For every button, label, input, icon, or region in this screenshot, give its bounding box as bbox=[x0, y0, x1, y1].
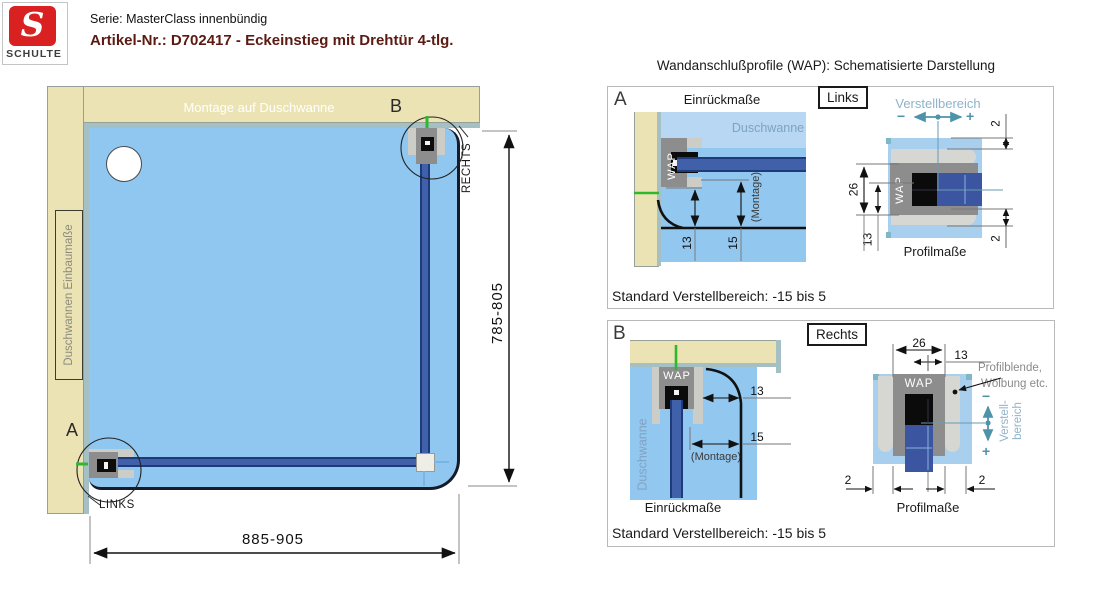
glass-panel-horizontal bbox=[113, 457, 417, 467]
wap-section-title: Wandanschlußprofile (WAP): Schematisiert… bbox=[646, 58, 1006, 73]
serie-line: Serie: MasterClass innenbündig bbox=[90, 12, 267, 26]
a-verstellbereich-label: Verstellbereich bbox=[878, 96, 998, 111]
b-dim-2-right: 2 bbox=[974, 473, 990, 487]
logo-wordmark: SCHULTE bbox=[3, 48, 65, 60]
b-dim-26: 26 bbox=[905, 336, 933, 350]
shower-tray bbox=[89, 128, 460, 490]
links-box-label: Links bbox=[818, 86, 868, 109]
panel-a-letter: A bbox=[614, 89, 627, 111]
b-wap-notch bbox=[674, 390, 679, 395]
corner-connector bbox=[416, 453, 435, 472]
b-profilmasse-label: Profilmaße bbox=[868, 500, 988, 515]
a-glass bbox=[677, 157, 806, 172]
einbaumasse-box: Duschwannen Einbaumaße bbox=[55, 210, 83, 380]
panel-a-side-box: Links bbox=[818, 86, 868, 109]
a-profile-teal-mark-bottom bbox=[886, 232, 891, 238]
a-duschwanne-label: Duschwanne bbox=[718, 121, 818, 135]
b-glass bbox=[670, 400, 683, 498]
b-profile-teal-mark-right bbox=[966, 374, 972, 380]
b-profile-glass-blue bbox=[905, 425, 933, 472]
b-profile-glass-black bbox=[905, 394, 933, 425]
a-dim-26: 26 bbox=[847, 178, 860, 202]
a-profile-glass-blue bbox=[937, 173, 982, 206]
a-dim-13: 13 bbox=[680, 228, 694, 258]
b-einrueckmasse-label: Einrückmaße bbox=[623, 500, 743, 515]
height-dimension-label: 785-805 bbox=[489, 268, 505, 358]
b-dim-15: 15 bbox=[743, 430, 771, 444]
einbaumasse-label: Duschwannen Einbaumaße bbox=[56, 211, 82, 379]
drain-circle bbox=[106, 146, 142, 182]
wap-profile-a-notch bbox=[104, 462, 108, 469]
a-wap-label: WAP bbox=[666, 144, 680, 188]
point-b-label: B bbox=[390, 96, 402, 117]
wap-profile-b-flank-right bbox=[436, 128, 445, 155]
rechts-label: RECHTS bbox=[461, 133, 475, 203]
b-profile-wap-label: WAP bbox=[897, 378, 941, 390]
panel-b-side-box: Rechts bbox=[807, 323, 867, 346]
a-dim-15: 15 bbox=[726, 228, 740, 258]
logo-red-square: S bbox=[9, 6, 56, 46]
b-duschwanne-label: Duschwanne bbox=[636, 400, 651, 510]
logo-s-glyph: S bbox=[9, 4, 56, 46]
a-dim-2-top: 2 bbox=[991, 112, 1004, 136]
b-blende-strip-right bbox=[945, 376, 960, 452]
b-wall-teal-cap bbox=[776, 340, 781, 373]
b-verstell-line2: bereich bbox=[1012, 386, 1024, 456]
b-verstell-line1: Verstell- bbox=[999, 386, 1011, 456]
links-label: LINKS bbox=[99, 499, 135, 511]
a-profile-teal-mark-top bbox=[886, 138, 891, 144]
point-a-label: A bbox=[66, 420, 78, 441]
b-standard-note: Standard Verstellbereich: -15 bis 5 bbox=[612, 525, 826, 541]
wap-profile-b-notch bbox=[425, 141, 430, 145]
b-minus-sign: − bbox=[982, 388, 990, 404]
rechts-box-label: Rechts bbox=[807, 323, 867, 346]
schulte-technical-sheet: S SCHULTE Serie: MasterClass innenbündig… bbox=[0, 0, 1116, 592]
a-minus-sign: − bbox=[897, 108, 905, 124]
b-dim-2-left: 2 bbox=[840, 473, 856, 487]
b-dim-13-profil: 13 bbox=[947, 348, 975, 362]
panel-a-einrueckmasse-heading: Einrückmaße bbox=[662, 92, 782, 107]
a-profilmasse-label: Profilmaße bbox=[875, 244, 995, 259]
b-wall bbox=[630, 340, 779, 365]
a-dim-13-profil: 13 bbox=[861, 228, 874, 252]
b-montage-label: (Montage) bbox=[671, 451, 761, 463]
a-plus-sign: + bbox=[966, 108, 974, 124]
a-montage-label: (Montage) bbox=[750, 152, 764, 242]
b-plus-sign: + bbox=[982, 443, 990, 459]
artikel-line: Artikel-Nr.: D702417 - Eckeinstieg mit D… bbox=[90, 32, 453, 49]
width-dimension-label: 885-905 bbox=[213, 531, 333, 548]
logo-box: S SCHULTE bbox=[2, 2, 68, 65]
dim-width-885-905 bbox=[90, 494, 459, 564]
montage-auf-duschwanne-label: Montage auf Duschwanne bbox=[154, 100, 364, 115]
b-wap-label: WAP bbox=[659, 370, 695, 382]
a-profile-glass-black bbox=[912, 173, 937, 206]
a-wall bbox=[634, 112, 659, 267]
b-blende-strip-left bbox=[878, 376, 893, 452]
b-dim-13: 13 bbox=[743, 384, 771, 398]
b-profilblende-label: Profilblende, bbox=[978, 362, 1042, 374]
panel-b-letter: B bbox=[613, 323, 626, 345]
a-standard-note: Standard Verstellbereich: -15 bis 5 bbox=[612, 288, 826, 304]
a-profile-wap-label: WAP bbox=[894, 168, 908, 212]
glass-panel-vertical bbox=[420, 153, 430, 454]
